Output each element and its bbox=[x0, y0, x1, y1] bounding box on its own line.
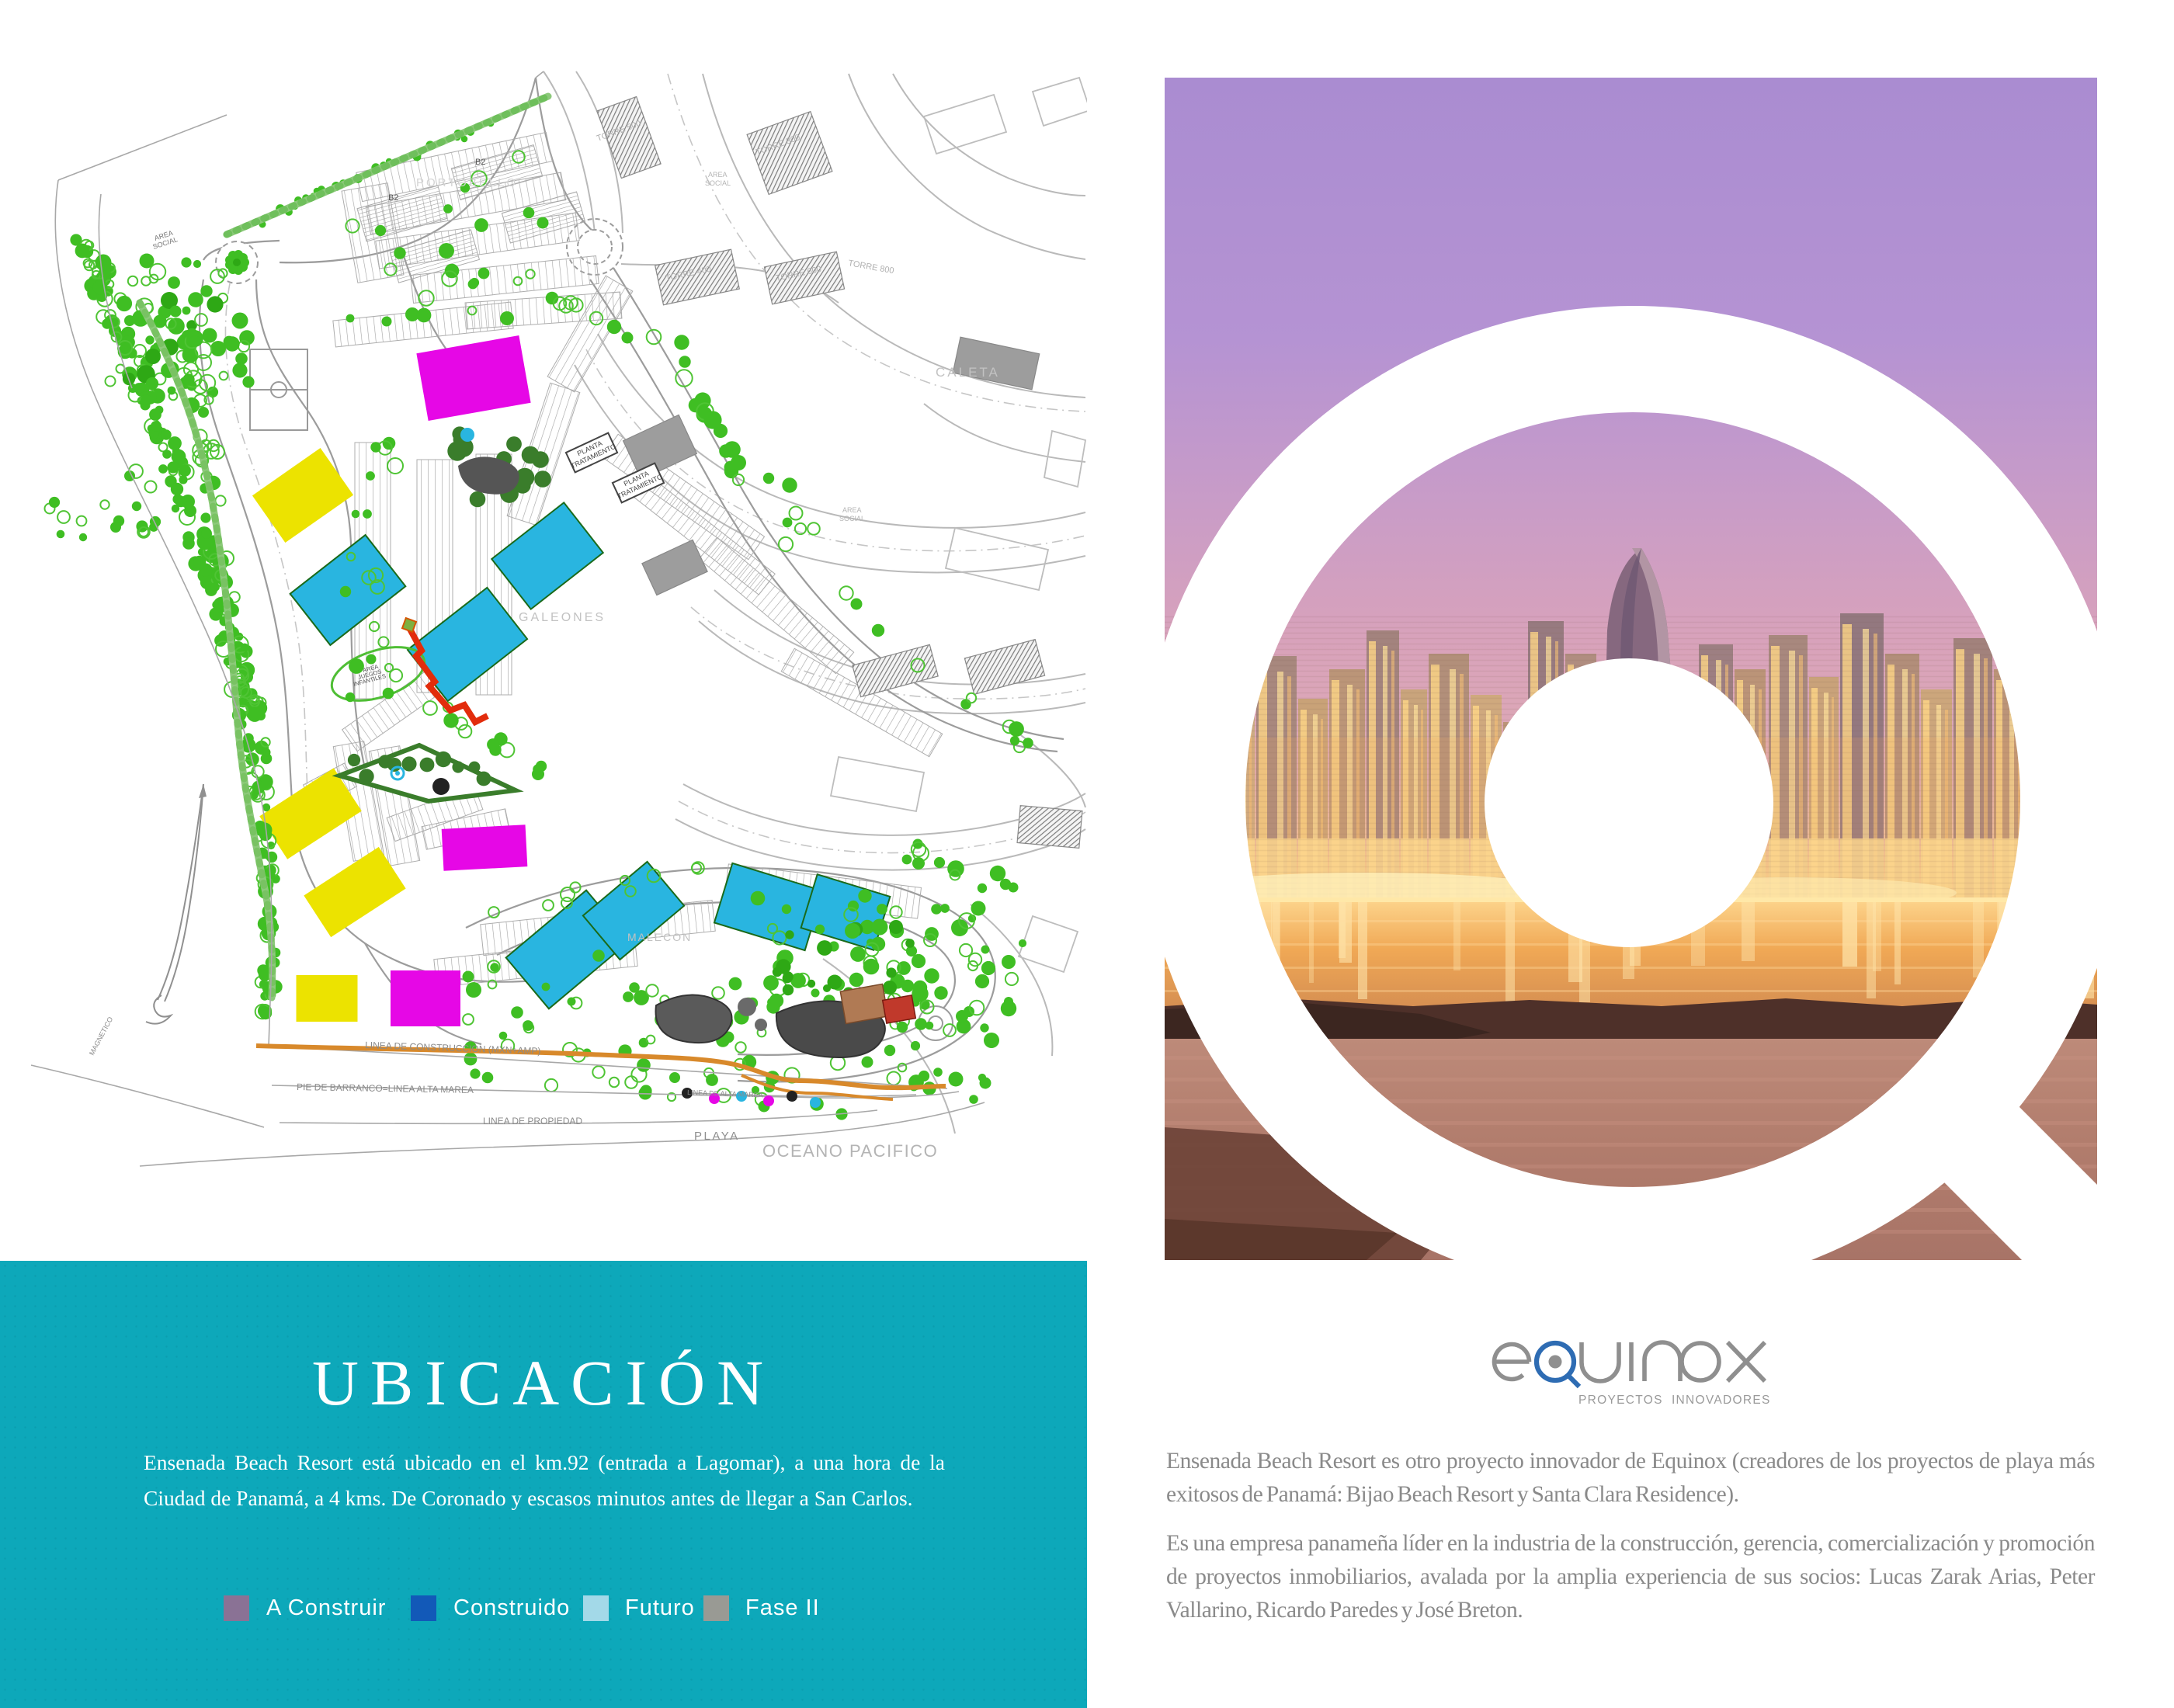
svg-text:OCEANO PACIFICO: OCEANO PACIFICO bbox=[762, 1141, 938, 1161]
svg-text:PIE DE BARRANCO=LINEA ALTA: PIE DE BARRANCO=LINEA ALTA MAREA bbox=[297, 1081, 474, 1095]
svg-text:GALEONES: GALEONES bbox=[519, 611, 606, 624]
svg-text:AREA: AREA bbox=[708, 171, 728, 179]
svg-text:AREA: AREA bbox=[842, 506, 862, 514]
svg-text:LINEA DE CONSTRUCCION (MXN+: LINEA DE CONSTRUCCION (MXN+AMP) bbox=[365, 1040, 541, 1057]
svg-text:CALETA: CALETA bbox=[936, 365, 1000, 380]
svg-text:SOCIAL: SOCIAL bbox=[705, 179, 731, 187]
svg-text:PLAYA: PLAYA bbox=[694, 1130, 740, 1143]
svg-text:PORTOBELLO: PORTOBELLO bbox=[416, 176, 518, 189]
svg-text:LINEA DE PROPIEDAD: LINEA DE PROPIEDAD bbox=[483, 1116, 582, 1127]
svg-text:TORRE 800: TORRE 800 bbox=[847, 259, 894, 276]
svg-text:SOCIAL: SOCIAL bbox=[839, 515, 865, 522]
svg-text:MAGNETICO: MAGNETICO bbox=[88, 1015, 114, 1057]
svg-text:LINEA DE ALTA MAREA: LINEA DE ALTA MAREA bbox=[687, 1088, 763, 1099]
svg-text:B2: B2 bbox=[475, 158, 485, 167]
svg-text:B2: B2 bbox=[388, 193, 398, 203]
svg-text:MALECON: MALECON bbox=[627, 931, 692, 943]
